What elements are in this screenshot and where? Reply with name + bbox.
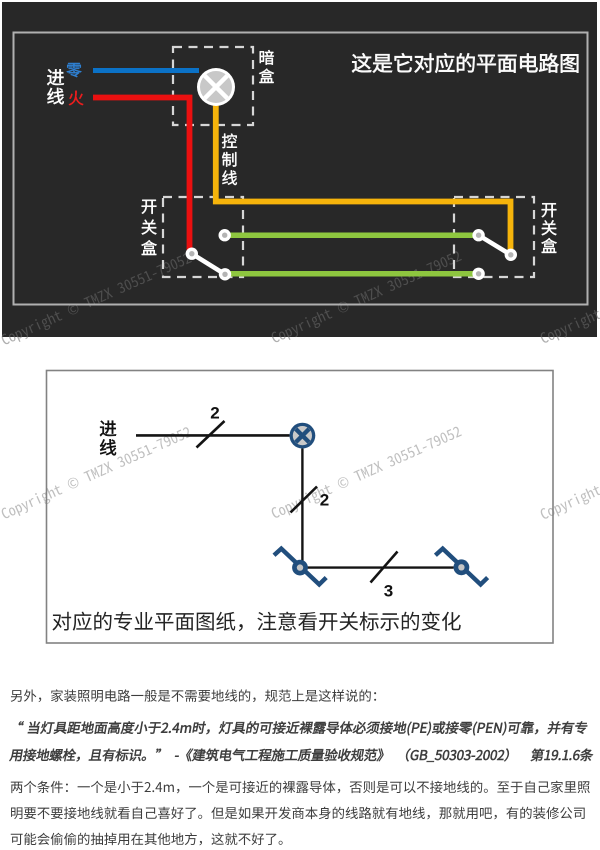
svg-text:2: 2 [320, 491, 329, 510]
svg-text:3: 3 [384, 582, 393, 601]
svg-text:2: 2 [210, 404, 219, 423]
